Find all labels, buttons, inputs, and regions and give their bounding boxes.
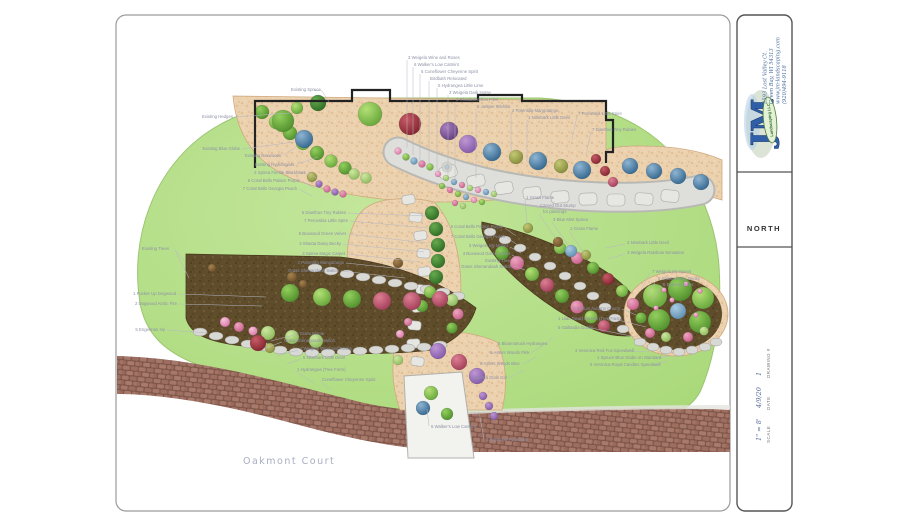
plant-label: 5 Walker's Low Catmint: [431, 424, 477, 429]
company-address-line2: Green Bay, WI 54313: [769, 48, 775, 104]
plant-label: 3 Weigela Wine and Roses: [408, 55, 460, 60]
plant-label: 5 Shasta Daisy Becky: [658, 276, 701, 281]
plant-label: 6 Existing Trees: [663, 282, 694, 287]
plant-label: 2 Ninebark Little Devil: [627, 240, 669, 245]
svg-text:DATE: DATE: [766, 396, 771, 410]
plant-label: 2 Boxwood Pyramidal: [486, 437, 528, 442]
plant-label: 3 Blue Mist Spirea: [553, 217, 588, 222]
plant-label: 5 Gaillardia Goblin: [558, 325, 594, 330]
plant-label: 6 Coral Bells Palace Purple: [451, 224, 504, 229]
plant-label: 7 Weigela My Monet: [652, 269, 692, 274]
plant-label: 2 Juniper Wichita: [477, 104, 511, 109]
plant-label: Existing Spruce: [291, 87, 321, 92]
plant-label: Carved Out Stump: [540, 203, 576, 208]
plant-label: 1 Grass Flame: [570, 226, 599, 231]
street-name: Oakmont Court: [243, 456, 335, 467]
plant-label: Existing Trees: [142, 246, 169, 251]
plant-label: 7 Perovskia Little Spire: [304, 218, 349, 223]
plant-label: 5 Bloomstruck Hydrangea: [498, 341, 548, 346]
svg-text:1: 1: [755, 372, 763, 376]
plant-label: 7 Coral Bells Georgia Peach: [243, 186, 298, 191]
plant-label: 2 Sedum Autumn Charm: [573, 306, 620, 311]
svg-text:1" = 8': 1" = 8': [755, 418, 763, 441]
company-address-line1: 2593 Lost Valley Ct.: [763, 51, 769, 105]
plant-label: 6 Walker's Low Catmint: [414, 62, 460, 67]
svg-text:4/9/20: 4/9/20: [755, 387, 763, 409]
plant-label: 2 Potentilla Mangotango: [298, 260, 345, 265]
plant-label: 5 Asters Woods Blue: [480, 361, 520, 366]
plant-label: 3 Weigela My Monet: [469, 243, 509, 248]
company-website: www.jm-landscaping.com: [776, 37, 782, 104]
plant-label: 7 Dianthus Tiny Rubies: [592, 127, 636, 132]
plant-label: 5 Coneflower Cheyenne Spirit: [421, 69, 479, 74]
plant-label: 5 Dianthus Tiny Rubies: [302, 210, 346, 215]
plant-label: Grass Shenandoah Switch: [284, 338, 335, 343]
plant-label: 2 Dogwood Arctic Fire: [135, 301, 178, 306]
plant-label: Grass Shenandoah Switch: [288, 268, 339, 273]
plant-label: Existing Boxwoods: [245, 153, 281, 158]
plant-label: 3 Shasta Daisy Becky: [299, 241, 342, 246]
plant-label: Existing Tree: [485, 258, 510, 263]
plant-label: 3 Boxwood Green Velvet: [463, 251, 511, 256]
plant-label: 1 Hydrangea (Tree Form): [297, 367, 346, 372]
plant-label: 5 Veronica Royal Candles Speedwell: [590, 362, 661, 367]
plant-label: 1 Ninebark Little Devil: [528, 115, 570, 120]
plant-label: 1 Weigela Wine and Roses: [300, 346, 352, 351]
title-block: JM Landscaping LLC 2593 Lost Valley Ct. …: [737, 15, 792, 511]
plant-label: 2 Spirea Firelite Blackhawk: [254, 170, 307, 175]
plant-label: 1 Spruce Blue Globe on Standard: [597, 355, 662, 360]
plant-label: Birdbath Relocated: [430, 76, 467, 81]
plant-label: 3 Weigela Rainbow Sensation: [627, 250, 685, 255]
plant-label: Coneflower Cheyenne Spirit: [322, 377, 376, 382]
plant-label: Existing Blue Globe: [203, 146, 241, 151]
plant-label: 2 Potentilla Mangotango: [512, 108, 559, 113]
driveway: [404, 372, 474, 458]
plant-label: 6 Asters Woods Pink: [490, 350, 530, 355]
svg-text:SCALE: SCALE: [766, 426, 771, 443]
plant-label: 3 Spirea Glow Girl: [472, 375, 507, 380]
plant-label: 4 Veronica Red Fox Speedwell: [575, 348, 634, 353]
plant-label: Existing Hedges: [202, 114, 233, 119]
plant-label: Existing Hydrangeas: [255, 162, 294, 167]
plant-label: 5 Boxwood Green Velvet: [299, 231, 347, 236]
plant-label: 3 Weigela Dark Horse: [449, 90, 492, 95]
plant-label: 1 Grass Flame: [526, 195, 555, 200]
plant-label: 7 Perovskia Little Spire: [578, 111, 623, 116]
plant-label: 1 Lilac Dwarf Korean (Tree Form): [558, 316, 622, 321]
plant-label: 6 Coral Bells Palace Purple: [248, 178, 301, 183]
plant-label: Grass Shenandoah Switch: [461, 264, 512, 269]
plant-label: 3 Rhododendron PJM: [456, 97, 498, 102]
svg-text:DRAWING #: DRAWING #: [766, 348, 771, 378]
plant-label: 7 Coral Bells Georgia Peach: [451, 234, 506, 239]
plant-label: for plantings: [543, 209, 566, 214]
company-phone: (920)494-9118: [781, 64, 788, 104]
plant-label: 5 Ninebark Little Devil: [303, 355, 345, 360]
plant-label: 5 Engelman Ivy: [135, 327, 165, 332]
north-label: NORTH: [747, 224, 781, 233]
landscape-plan-canvas: 3 Weigela Wine and Roses6 Walker's Low C…: [0, 0, 900, 525]
plant-label: 5 Hydrangea Little Lime: [438, 83, 484, 88]
plant-label: 3 Spirea Magic Carpet: [302, 251, 346, 256]
plant-label: 1 Pucker Up Dogwood: [133, 291, 177, 296]
plant-label: 1 Grass Flame: [296, 331, 325, 336]
